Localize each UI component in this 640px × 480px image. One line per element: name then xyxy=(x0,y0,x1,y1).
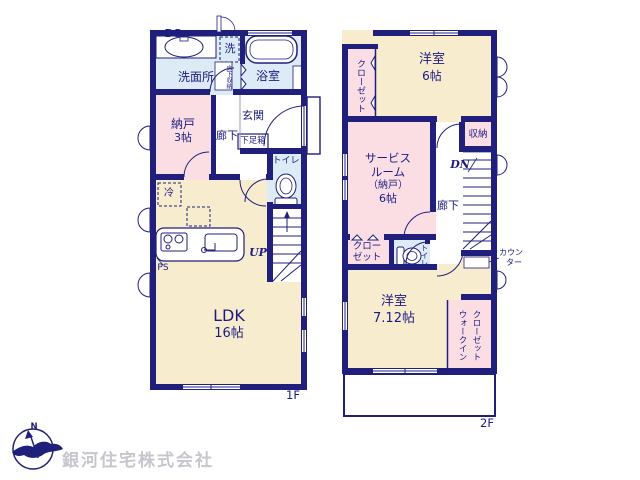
label-service-room-l1: サービス xyxy=(352,152,424,165)
label-washer: 洗 xyxy=(221,43,239,55)
label-service-room-l3: （納戸） xyxy=(352,180,424,191)
label-closet-top: クローゼット xyxy=(351,54,368,118)
label-counter-l2: ター xyxy=(500,259,528,268)
label-western-room6-name: 洋室 xyxy=(401,53,463,68)
label-stairs-up: UP xyxy=(245,247,271,259)
balcony xyxy=(344,374,495,416)
label-toilet-1f: トイレ xyxy=(268,156,304,166)
label-storage-room-name: 納戸 xyxy=(162,118,204,131)
company-name: 銀河住宅株式会社 xyxy=(62,452,222,471)
label-storage-2f: 収納 xyxy=(461,130,495,141)
company-logo xyxy=(12,429,63,469)
label-wic-col2: クローゼット xyxy=(470,306,482,364)
bird-icon xyxy=(12,442,63,458)
label-service-room-l2: ルーム xyxy=(352,166,424,179)
label-closet2-l2: ゼット xyxy=(347,253,387,264)
floorplan-graphic xyxy=(0,0,640,480)
label-ps: PS xyxy=(152,263,174,273)
label-wic-col1: ウォークイン xyxy=(456,306,468,364)
label-western-room7-name: 洋室 xyxy=(363,295,425,310)
label-western-room7-size: 7.12帖 xyxy=(363,312,425,327)
label-service-room-l4: 6帖 xyxy=(352,193,424,205)
label-underfloor-storage: 床下収納 xyxy=(216,64,232,90)
label-ldk-size: 16帖 xyxy=(199,327,259,342)
compass-n-label: N xyxy=(28,423,40,433)
label-shoe-box: 下足箱 xyxy=(238,137,268,147)
label-hallway-2f: 廊下 xyxy=(430,200,466,212)
label-fridge: 冷 xyxy=(159,188,179,199)
label-toilet-2f: トイレ xyxy=(418,242,430,268)
label-western-room6-size: 6帖 xyxy=(401,70,463,83)
label-ldk-name: LDK xyxy=(199,307,259,325)
label-floor-1f: 1F xyxy=(280,389,306,402)
label-stairs-dn: DN xyxy=(446,159,474,171)
label-walkin-closet: ウォークイン クローゼット xyxy=(456,306,482,364)
label-counter-l1: カウン xyxy=(497,249,525,258)
label-entrance: 玄関 xyxy=(233,110,273,122)
label-ds: DS xyxy=(159,28,187,40)
label-bathroom: 浴室 xyxy=(245,70,291,83)
label-storage-room-size: 3帖 xyxy=(162,132,204,144)
floorplan-page: DS 洗 洗面所 床下収納 浴室 納戸 3帖 廊下 玄関 下足箱 トイレ 冷 U… xyxy=(0,0,640,480)
label-floor-2f: 2F xyxy=(474,417,500,430)
